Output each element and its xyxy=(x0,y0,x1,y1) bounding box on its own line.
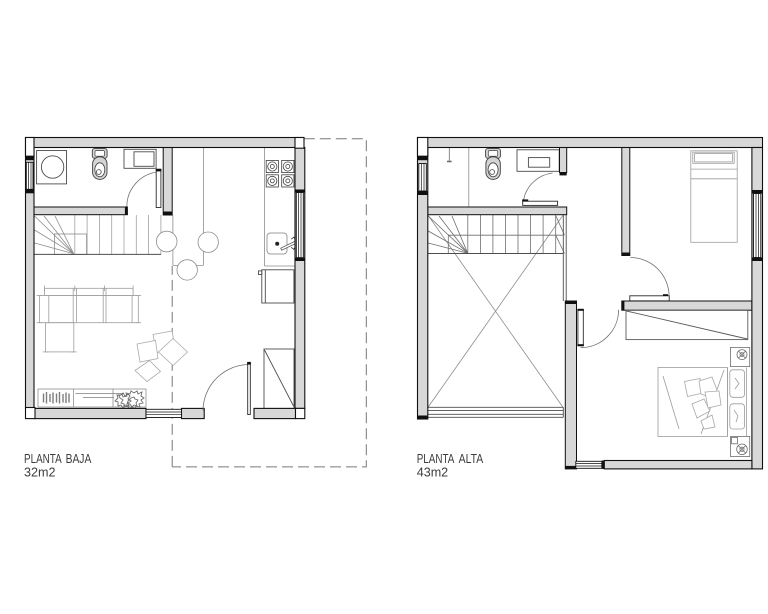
svg-text:43m2: 43m2 xyxy=(417,465,449,479)
svg-text:ALTA: ALTA xyxy=(459,452,484,466)
svg-text:BAJA: BAJA xyxy=(66,452,92,466)
svg-text:32m2: 32m2 xyxy=(24,465,56,479)
svg-text:PLANTA: PLANTA xyxy=(24,452,62,466)
svg-text:PLANTA: PLANTA xyxy=(417,452,455,466)
